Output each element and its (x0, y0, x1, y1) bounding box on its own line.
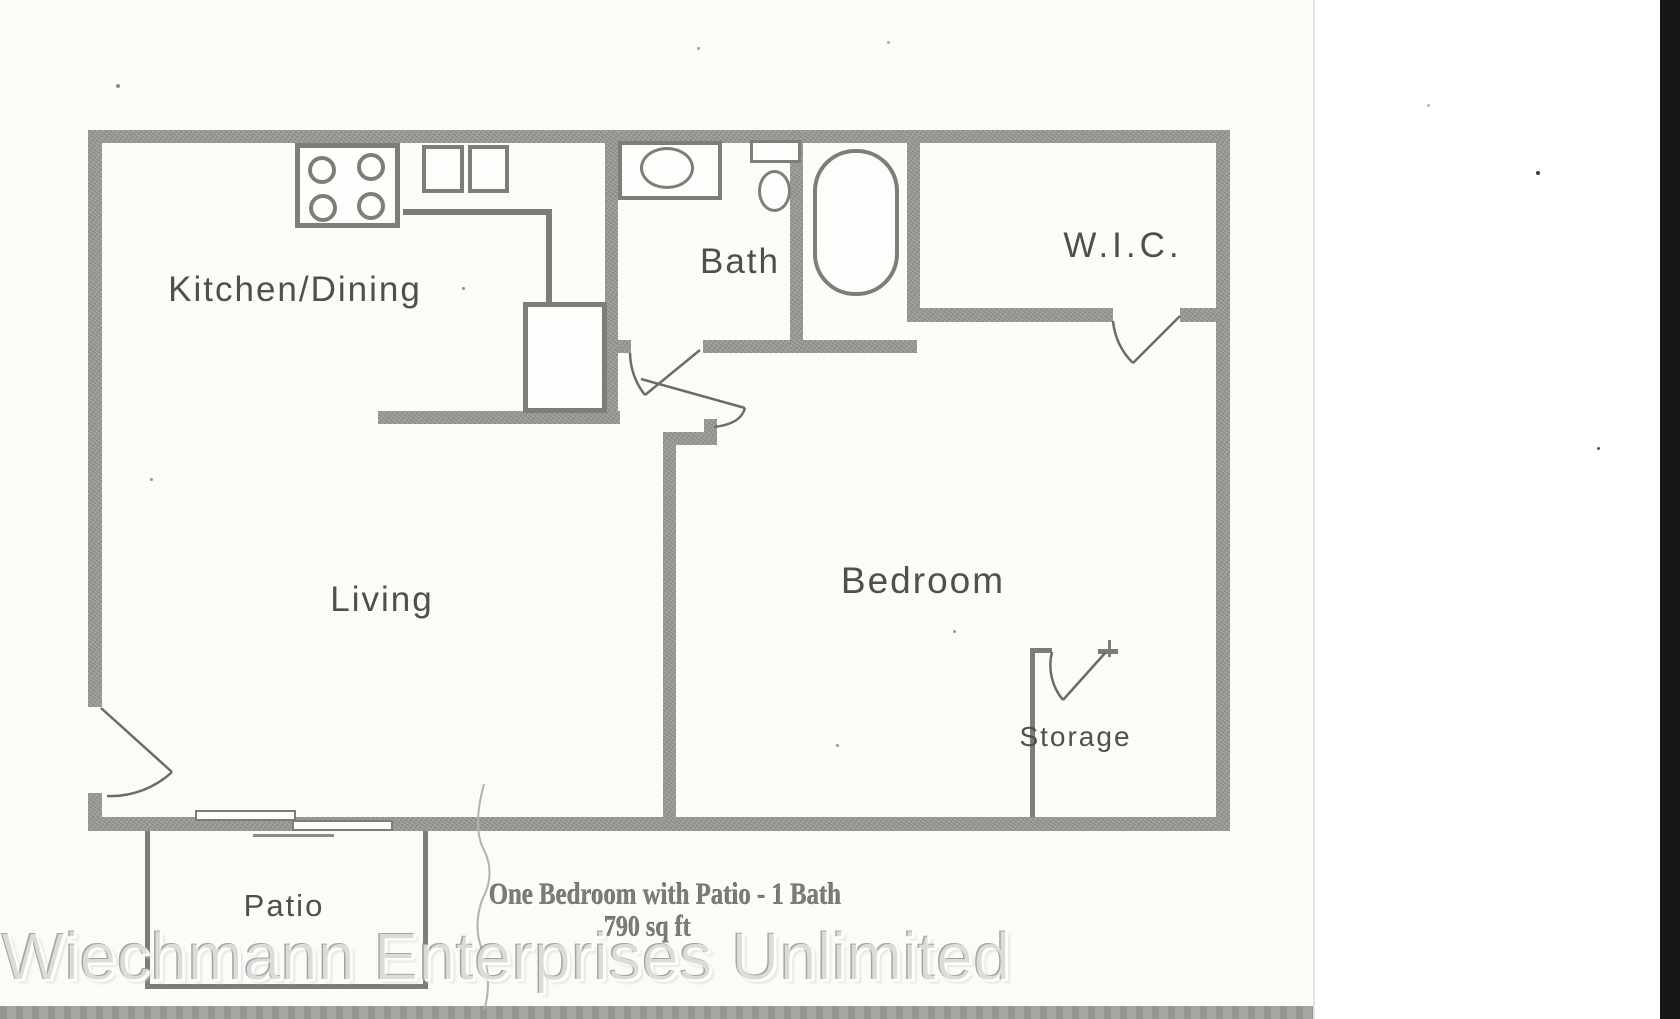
storage-door-leaf (1063, 652, 1106, 700)
wic-door-leaf (1133, 316, 1180, 363)
room-label-wic: W.I.C. (1038, 226, 1208, 266)
bath-door-arc (630, 353, 645, 395)
wic-door-arc (1113, 321, 1133, 363)
storage-door-arc (1050, 652, 1063, 700)
room-label-bedroom: Bedroom (818, 560, 1028, 602)
room-label-patio: Patio (218, 888, 350, 924)
room-label-living: Living (297, 580, 467, 620)
watermark-text: Wiechmann Enterprises Unlimited (2, 924, 1011, 991)
bedroom-door-arc (714, 408, 745, 427)
floorplan-scan: Kitchen/Dining Bath W.I.C. Living Bedroo… (0, 0, 1680, 1019)
room-label-kitchen-dining: Kitchen/Dining (140, 270, 450, 310)
room-label-bath: Bath (675, 242, 805, 282)
door-swing-lines (0, 0, 1680, 1019)
entry-door-leaf (101, 708, 172, 772)
room-label-storage: Storage (1008, 721, 1143, 753)
entry-door-arc (107, 772, 172, 796)
bedroom-door-leaf (641, 379, 745, 408)
plan-title: One Bedroom with Patio - 1 Bath (489, 876, 841, 912)
